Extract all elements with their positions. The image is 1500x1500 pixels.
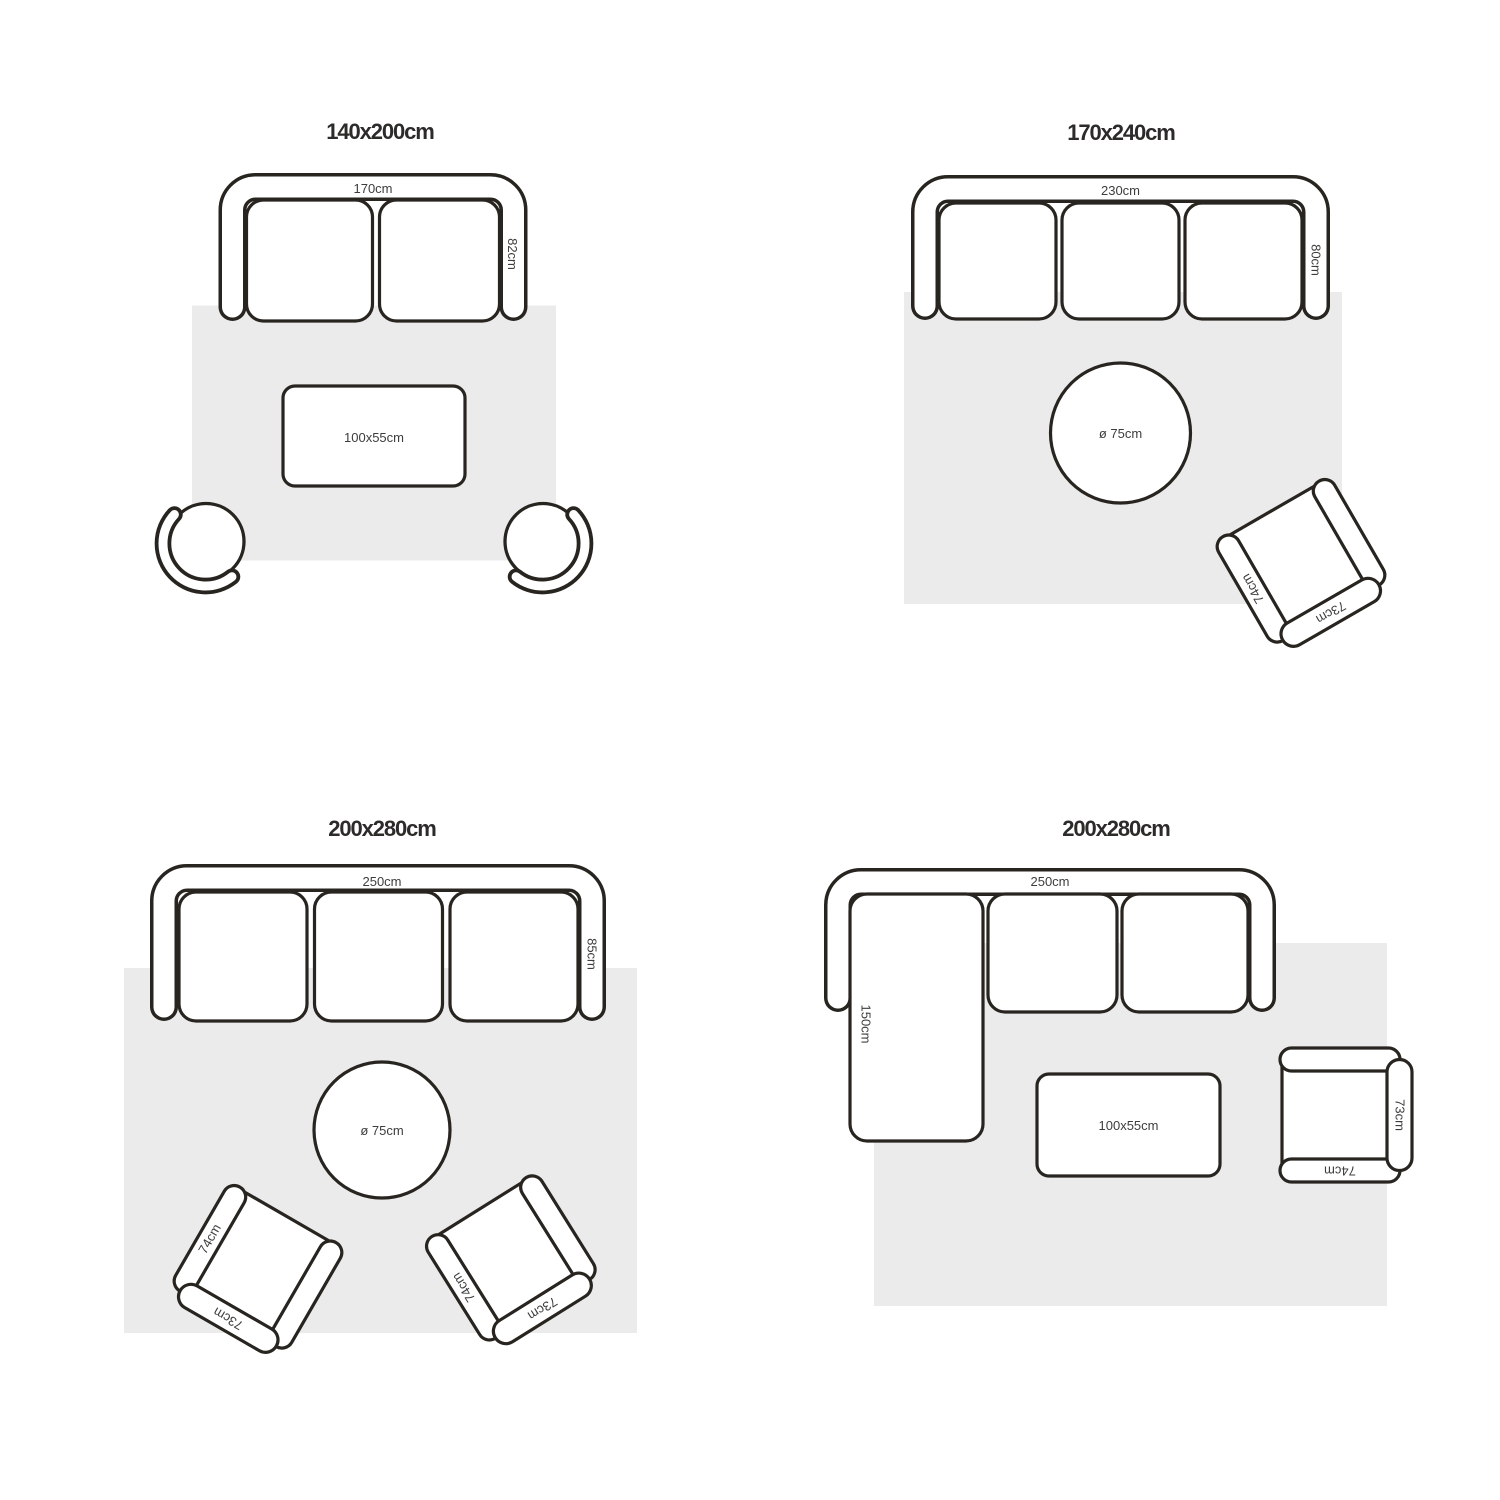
svg-text:250cm: 250cm xyxy=(1030,874,1069,889)
svg-text:150cm: 150cm xyxy=(859,1004,874,1043)
svg-text:ø 75cm: ø 75cm xyxy=(1099,426,1142,441)
svg-text:170cm: 170cm xyxy=(353,181,392,196)
svg-text:100x55cm: 100x55cm xyxy=(344,430,404,445)
svg-text:82cm: 82cm xyxy=(505,238,520,270)
svg-text:230cm: 230cm xyxy=(1101,183,1140,198)
svg-text:85cm: 85cm xyxy=(585,938,600,970)
svg-text:73cm: 73cm xyxy=(1393,1099,1408,1131)
svg-text:200x280cm: 200x280cm xyxy=(1062,816,1170,841)
svg-text:250cm: 250cm xyxy=(362,874,401,889)
svg-text:200x280cm: 200x280cm xyxy=(328,816,436,841)
svg-text:74cm: 74cm xyxy=(1324,1164,1356,1179)
svg-text:170x240cm: 170x240cm xyxy=(1067,120,1175,145)
svg-text:ø 75cm: ø 75cm xyxy=(360,1123,403,1138)
svg-text:80cm: 80cm xyxy=(1309,244,1324,276)
svg-text:100x55cm: 100x55cm xyxy=(1099,1118,1159,1133)
svg-text:140x200cm: 140x200cm xyxy=(326,119,434,144)
